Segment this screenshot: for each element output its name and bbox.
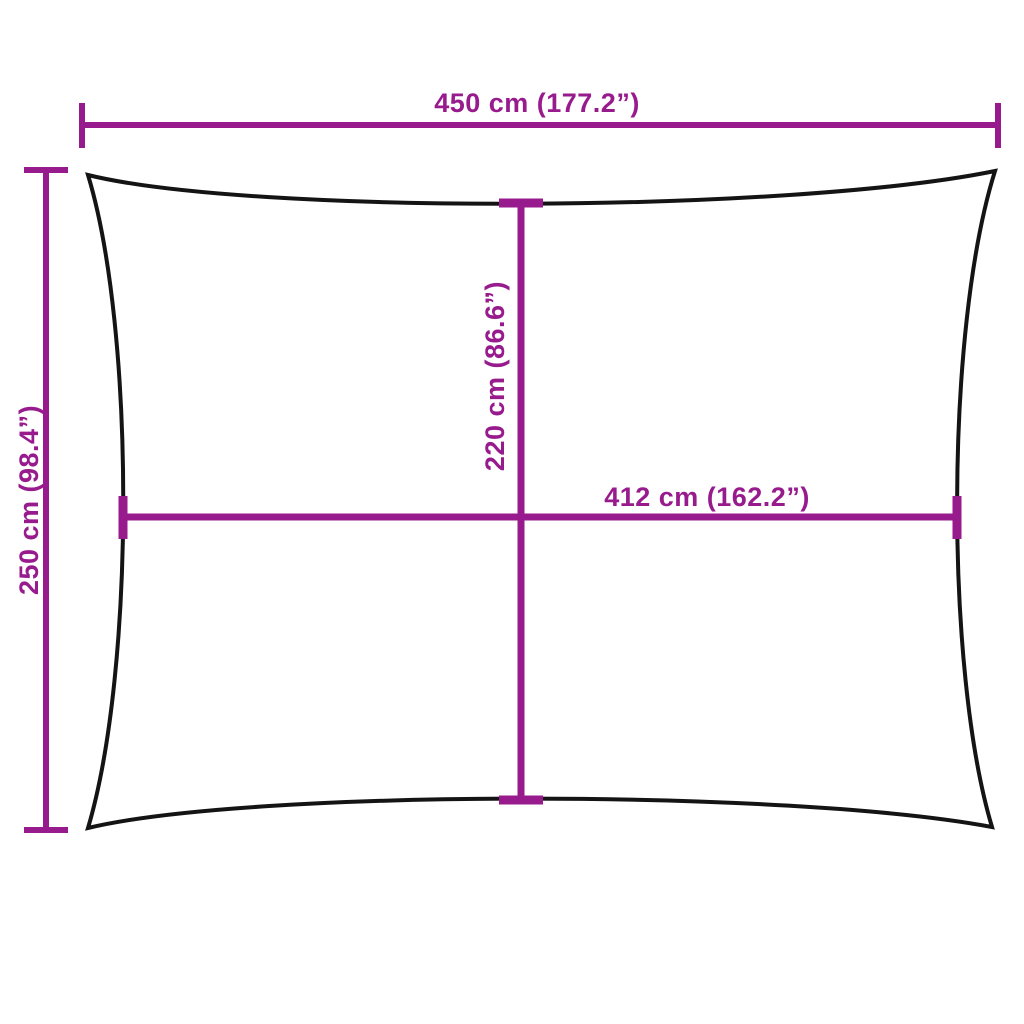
total-width-dimension: 450 cm (177.2”) xyxy=(82,88,998,148)
sail-outline xyxy=(88,171,995,828)
inner-height-dimension: 220 cm (86.6”) xyxy=(480,203,543,800)
total-height-label: 250 cm (98.4”) xyxy=(14,405,44,595)
total-width-label: 450 cm (177.2”) xyxy=(434,88,640,118)
dimension-diagram: 450 cm (177.2”) 250 cm (98.4”) 220 cm (8… xyxy=(0,0,1024,1024)
inner-width-label: 412 cm (162.2”) xyxy=(604,482,810,512)
total-height-dimension: 250 cm (98.4”) xyxy=(14,170,68,830)
inner-width-dimension: 412 cm (162.2”) xyxy=(123,482,957,539)
diagram-canvas: 450 cm (177.2”) 250 cm (98.4”) 220 cm (8… xyxy=(0,0,1024,1024)
inner-height-label: 220 cm (86.6”) xyxy=(480,281,510,471)
